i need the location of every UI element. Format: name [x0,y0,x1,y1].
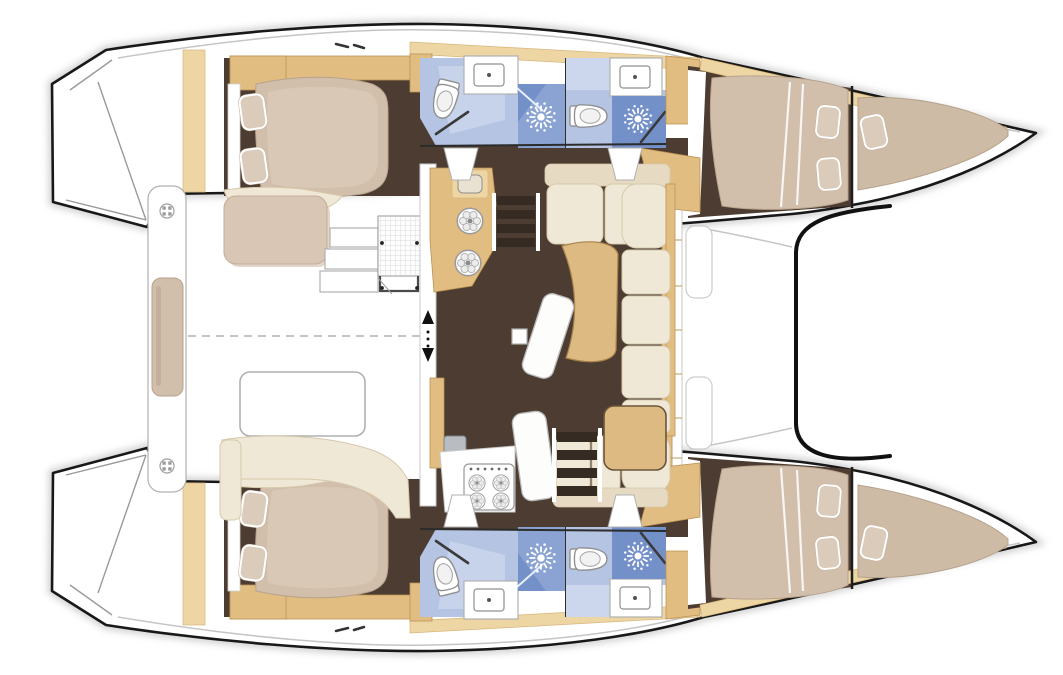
cockpit [148,186,424,520]
stool-bracket [380,276,418,291]
round-sink-icon [455,250,481,276]
saloon [420,148,700,527]
sofa-cushion [622,250,670,294]
deck-fitting-icon [160,459,174,473]
burner-icon [493,475,509,491]
floorplan-canvas [0,0,1063,675]
burner-icon [469,475,485,491]
round-sink-icon [457,208,483,234]
sofa-corner-cushion [622,184,670,248]
second-table [604,406,666,470]
catamaran-floorplan [0,0,1063,675]
forward-crossbeam [796,206,890,459]
cockpit-table [240,372,365,436]
grid-table-unit [378,216,422,294]
burner-icon [493,493,509,509]
foredeck [686,206,890,459]
sofa-backrest [545,164,670,186]
deck-hatch [686,226,712,298]
sofa-cushion [622,296,670,344]
cushion-seam [156,286,161,386]
deck-fitting-icon [160,204,174,218]
side-bench-cushion [224,196,327,264]
sofa-cushion [547,184,603,244]
deck-hatch [686,377,712,449]
sofa-cushion [556,436,590,492]
curved-bench-arm [220,440,241,520]
sofa-cushion [622,346,670,398]
table-leg-base [512,329,527,344]
